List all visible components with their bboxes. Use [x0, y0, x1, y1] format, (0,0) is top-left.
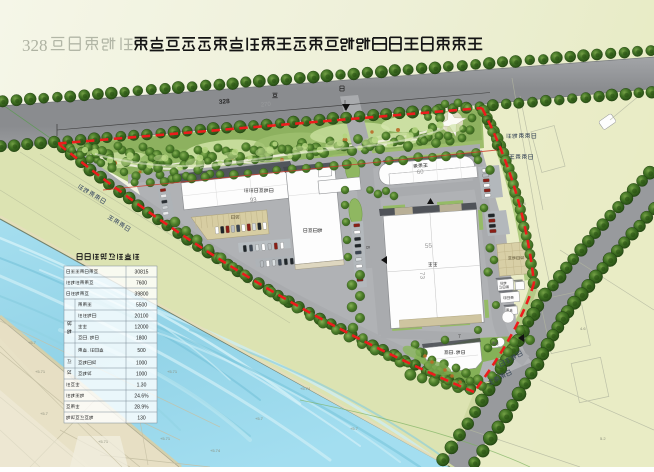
- svg-text:5500: 5500: [136, 303, 147, 309]
- svg-text:+5.7: +5.7: [350, 426, 359, 431]
- svg-text:12000: 12000: [135, 325, 149, 331]
- svg-text:7600: 7600: [136, 281, 147, 287]
- svg-text:60: 60: [417, 169, 425, 176]
- svg-text:1800: 1800: [136, 336, 147, 342]
- svg-text:+5.7: +5.7: [255, 416, 264, 421]
- svg-text:+5.7: +5.7: [40, 411, 49, 416]
- svg-text:7: 7: [458, 334, 461, 340]
- svg-text:39800: 39800: [135, 292, 149, 298]
- svg-text:4.6: 4.6: [580, 326, 586, 331]
- svg-text:500: 500: [137, 348, 146, 354]
- svg-text:+5.7: +5.7: [28, 340, 37, 345]
- svg-text:+5.74: +5.74: [300, 386, 311, 391]
- svg-text:73: 73: [418, 272, 426, 280]
- svg-text:+5.74: +5.74: [210, 448, 221, 453]
- svg-text:1.30: 1.30: [137, 383, 147, 389]
- svg-text:7: 7: [487, 271, 493, 275]
- svg-text:328: 328: [22, 36, 48, 55]
- svg-text:1000: 1000: [136, 361, 147, 367]
- svg-text:+5.71: +5.71: [35, 369, 46, 374]
- svg-text:20100: 20100: [135, 314, 149, 320]
- svg-text:130: 130: [137, 416, 146, 422]
- svg-text:+5.71: +5.71: [167, 369, 178, 374]
- svg-text:24.6%: 24.6%: [134, 394, 149, 400]
- svg-text:30815: 30815: [135, 270, 149, 276]
- svg-text:8: 8: [364, 246, 370, 250]
- svg-text:5.8: 5.8: [520, 201, 526, 206]
- svg-text:+5.71: +5.71: [98, 439, 109, 444]
- svg-text:328: 328: [219, 98, 231, 106]
- svg-text:5.2: 5.2: [600, 436, 606, 441]
- svg-text:+5.71: +5.71: [160, 436, 171, 441]
- svg-text:93: 93: [250, 197, 258, 204]
- svg-text:1000: 1000: [136, 372, 147, 378]
- svg-text:270: 270: [261, 102, 272, 109]
- svg-text:28.9%: 28.9%: [134, 405, 149, 411]
- svg-text:55: 55: [425, 242, 433, 250]
